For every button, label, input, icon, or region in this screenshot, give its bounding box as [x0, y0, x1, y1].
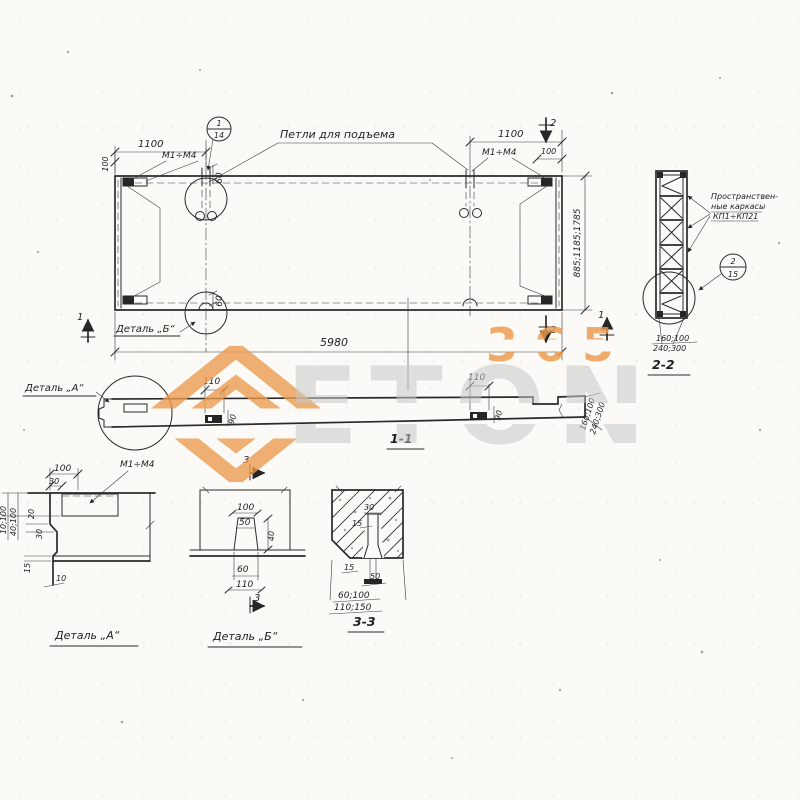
section-1-1: 110 90 110 90 160;100 240;300 Деталь „А“… — [23, 373, 607, 450]
cut-2-top-label: 2 — [550, 118, 556, 129]
dim-110-right: 110 — [468, 373, 485, 383]
dim-1100-left: 1100 — [138, 139, 163, 150]
left-recess-outline — [127, 186, 160, 300]
cut-mark-1-right: 1 — [598, 310, 614, 340]
cut-3-bottom-label: 3 — [254, 593, 260, 604]
marks-label-left: М1÷М4 — [162, 151, 197, 161]
detail-a-circle — [98, 376, 172, 450]
s33-dim-15-bottom: 15 — [344, 563, 354, 572]
dim-100-right: 100 — [541, 147, 556, 156]
detail-b-dim-110: 110 — [236, 580, 253, 590]
plan-view: 60 60 1100 100 1100 — [77, 117, 614, 390]
callout-2-sheet: 15 — [728, 270, 738, 279]
dim-110-left: 110 — [203, 377, 220, 387]
detail-a-view: 100 30 10;100 40;100 20 30 15 10 М1÷М4 Д… — [0, 460, 155, 646]
dim-right-heights: 885;1185;1785 — [573, 208, 583, 277]
detail-callout-2: 2 15 — [699, 254, 746, 290]
detail-callout-1: 1 14 — [207, 117, 231, 170]
cut-mark-2-bottom: 2 — [539, 316, 556, 342]
section-2-2: Пространствен- ные каркасы КП1÷КП21 2 15… — [643, 171, 778, 375]
dim-90-left: 90 — [227, 413, 238, 425]
callout-1-number: 1 — [216, 119, 221, 128]
corner-plate — [123, 178, 552, 304]
paper-specks — [11, 51, 781, 759]
lifting-loop-left: 60 60 — [185, 148, 227, 352]
s33-dim-b: 110;150 — [334, 603, 372, 613]
detail-a-title: Деталь „А“ — [54, 629, 120, 642]
detail-a-dim-30-mid: 30 — [35, 529, 44, 539]
cut-mark-3-top: 3 — [243, 455, 264, 480]
detail-a-dim-15: 15 — [23, 563, 32, 573]
lifting-loops-label: Петли для подъема — [280, 128, 395, 141]
s33-dim-30: 30 — [364, 503, 374, 512]
detail-a-dim-left-b: 40;100 — [9, 508, 18, 536]
cut-1-left-label: 1 — [77, 312, 83, 323]
dim-60-bottom: 60 — [215, 295, 225, 307]
cages-note-line1: Пространствен- — [711, 192, 778, 201]
dim-22-a: 160;100 — [656, 334, 689, 343]
section-1-1-title: 1-1 — [390, 431, 413, 446]
right-recess-outline — [520, 184, 550, 298]
detail-b-dim-60: 60 — [237, 565, 249, 575]
cut-3-top-label: 3 — [243, 455, 249, 466]
dim-1100-right: 1100 — [498, 129, 523, 140]
cut-2-bottom-label: 2 — [550, 325, 556, 336]
drawing-linework: 60 60 1100 100 1100 — [0, 0, 800, 800]
detail-a-dim-100: 100 — [54, 464, 71, 474]
cages-note-line3: КП1÷КП21 — [713, 212, 758, 221]
detail-a-dim-10: 10 — [56, 574, 66, 583]
cut-mark-2-top: 2 — [539, 118, 556, 142]
detail-a-dim-30-top: 30 — [49, 477, 59, 486]
detail-b-title: Деталь „Б“ — [212, 630, 278, 643]
detail-a-marks: М1÷М4 — [120, 460, 155, 470]
detail-b-dim-100: 100 — [237, 503, 254, 513]
detail-b-reference: Деталь „Б“ — [115, 324, 175, 335]
section-2-2-title: 2-2 — [652, 357, 675, 372]
section-3-3-title: 3-3 — [353, 614, 376, 629]
cages-note-line2: ные каркасы — [711, 202, 765, 211]
lifting-loop-right — [460, 166, 482, 316]
marks-label-right: М1÷М4 — [482, 148, 517, 158]
cut-mark-1-left: 1 — [77, 312, 95, 342]
s33-dim-50: 50 — [370, 572, 380, 581]
scanned-drawing-sheet: 60 60 1100 100 1100 — [0, 0, 800, 800]
detail-a-reference: Деталь „А“ — [24, 383, 84, 394]
detail-a-dim-20: 20 — [27, 509, 36, 519]
callout-2-number: 2 — [730, 257, 735, 266]
section-3-3: 30 15 15 50 60;100 110;150 3-3 — [310, 450, 450, 632]
s33-dim-a: 60;100 — [338, 591, 370, 601]
dim-100-left: 100 — [101, 156, 110, 171]
dim-22-b: 240;300 — [653, 344, 686, 353]
detail-b-dim-40: 40 — [267, 531, 276, 541]
s33-dim-15-top: 15 — [352, 519, 362, 528]
callout-1-sheet: 14 — [214, 131, 224, 140]
detail-b-view: 3 100 50 40 60 110 3 Деталь „Б“ — [190, 455, 305, 647]
detail-a-dim-left-a: 10;100 — [0, 506, 8, 534]
cut-mark-3-bottom: 3 — [250, 593, 264, 613]
detail-b-dim-50: 50 — [239, 518, 251, 528]
cut-1-right-label: 1 — [598, 310, 604, 321]
dim-length-5980: 5980 — [320, 336, 348, 349]
